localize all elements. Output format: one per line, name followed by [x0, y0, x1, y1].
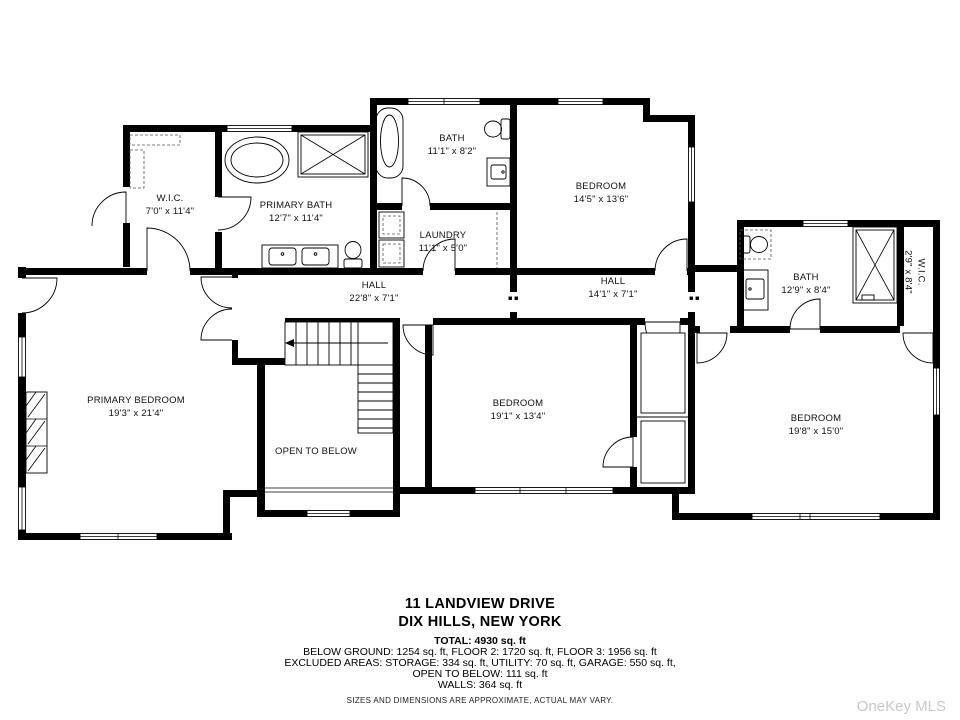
window: [19, 337, 26, 377]
room-label-wic-right-name: W.I.C.: [916, 258, 927, 285]
door-arc: [147, 228, 190, 271]
toilet-icon: [344, 242, 362, 269]
room-label-wic-left: W.I.C.7'0" x 11'4": [146, 193, 195, 218]
room-label-primary-bedroom: PRIMARY BEDROOM19'3" x 21'4": [87, 395, 185, 420]
door-arc: [697, 333, 727, 363]
closet-outline: [637, 333, 688, 483]
window: [475, 488, 613, 494]
room-label-bedroom-top: BEDROOM14'5" x 13'6": [574, 181, 629, 206]
bathtub-icon: [225, 137, 289, 183]
window: [227, 126, 292, 132]
shower-icon: [298, 132, 368, 177]
window: [558, 99, 603, 105]
door-arc: [603, 437, 633, 467]
room-label-bedroom-mid: BEDROOM19'1" x 13'4": [491, 398, 546, 423]
fixtures: [26, 108, 897, 492]
door-arc: [790, 299, 820, 329]
toilet-icon: [485, 119, 511, 139]
room-label-open-to-below: OPEN TO BELOW: [275, 446, 357, 459]
door-arc: [92, 192, 126, 226]
room-label-bath-right: BATH12'9" x 8'4": [781, 272, 830, 297]
window: [307, 511, 350, 517]
walls-area: WALLS: 364 sq. ft: [0, 680, 960, 691]
door-arc: [903, 333, 933, 363]
room-label-bath-top: BATH11'1" x 8'2": [428, 133, 477, 158]
door-arc: [22, 278, 57, 313]
fireplace-icon: [26, 392, 47, 473]
address-line-2: DIX HILLS, NEW YORK: [0, 613, 960, 631]
address-line-1: 11 LANDVIEW DRIVE: [0, 595, 960, 613]
bathtub-icon: [376, 108, 403, 178]
room-label-wic-right-dims: 2'9" x 8'4": [903, 250, 914, 294]
room-label-hall-main: HALL22'8" x 7'1": [349, 280, 398, 305]
vanity-sink-icon: [742, 270, 768, 310]
window: [934, 368, 940, 415]
door-arc: [218, 197, 251, 230]
window: [803, 221, 848, 227]
footer-block: 11 LANDVIEW DRIVE DIX HILLS, NEW YORK TO…: [0, 595, 960, 691]
toilet-icon: [740, 230, 771, 259]
staircase-icon: [285, 322, 393, 433]
walls: [18, 98, 940, 540]
room-label-bedroom-right: BEDROOM19'8" x 15'0": [789, 413, 844, 438]
room-label-laundry: LAUNDRY11'1" x 5'0": [419, 230, 468, 255]
shower-icon: [853, 227, 897, 303]
floor-plan-page: W.I.C.7'0" x 11'4" PRIMARY BATH12'7" x 1…: [0, 0, 960, 720]
room-label-primary-bath: PRIMARY BATH12'7" x 11'4": [260, 200, 333, 225]
closet-shelf: [130, 135, 180, 188]
vanity-sink-icon: [262, 245, 338, 268]
vanity-sink-icon: [487, 158, 510, 186]
door-arc: [201, 277, 232, 340]
window: [80, 534, 157, 540]
disclaimer: SIZES AND DIMENSIONS ARE APPROXIMATE, AC…: [0, 696, 960, 705]
door-arc: [402, 178, 430, 206]
window: [689, 147, 695, 202]
onekey-mls-watermark: OneKey MLS: [857, 698, 946, 715]
window: [752, 514, 880, 520]
window: [19, 487, 26, 530]
window: [408, 99, 480, 105]
room-label-hall-east: HALL14'1" x 7'1": [588, 276, 637, 301]
balcony-edge: [265, 488, 393, 492]
door-arc: [655, 239, 687, 271]
